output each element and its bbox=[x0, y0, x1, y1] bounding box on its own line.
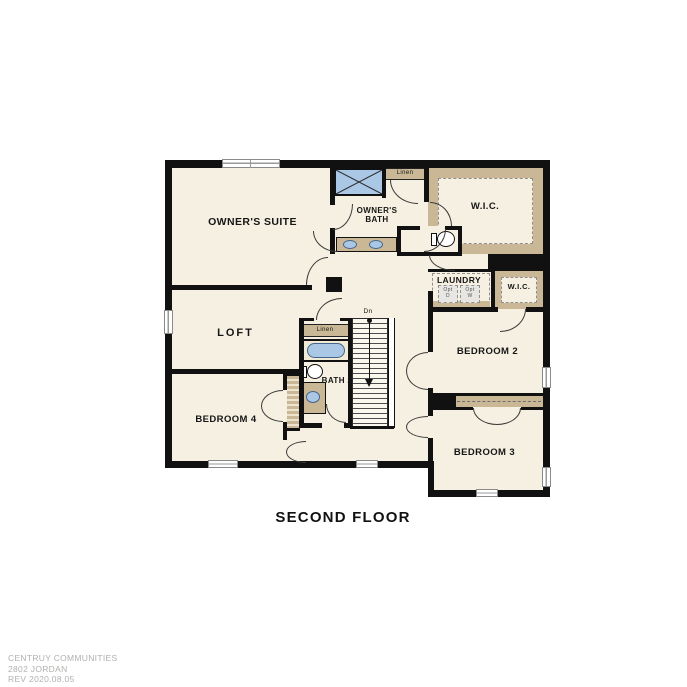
window-mullion bbox=[250, 159, 251, 168]
stair-direction-arrowhead bbox=[365, 379, 373, 387]
bedroom4-closet-shelving bbox=[287, 376, 299, 428]
room-label-bedroom2: BEDROOM 2 bbox=[435, 346, 540, 357]
wall bbox=[299, 423, 322, 428]
wall bbox=[428, 410, 433, 416]
wall bbox=[543, 160, 550, 497]
wall bbox=[172, 285, 312, 290]
room-label-bedroom3: BEDROOM 3 bbox=[432, 447, 537, 458]
sink-icon bbox=[369, 240, 383, 249]
room-label-loft: LOFT bbox=[198, 327, 273, 340]
label-opt-washer: Opt W bbox=[463, 288, 477, 300]
room-label-bedroom4: BEDROOM 4 bbox=[170, 414, 282, 425]
footer-block: CENTRUY COMMUNITIES 2802 JORDAN REV 2020… bbox=[8, 653, 268, 685]
window bbox=[164, 310, 173, 334]
wall bbox=[330, 168, 335, 205]
window bbox=[222, 159, 280, 168]
floor-plan-page: OWNER'S SUITE OWNER'S BATH LOFT BEDROOM … bbox=[0, 0, 687, 687]
window bbox=[208, 460, 238, 468]
wall bbox=[428, 393, 456, 410]
footer-plan-name: 2802 JORDAN bbox=[8, 664, 268, 675]
wall bbox=[283, 422, 287, 440]
wall bbox=[521, 407, 543, 410]
wall bbox=[428, 312, 433, 352]
wall bbox=[428, 269, 491, 272]
room-label-bath2: BATH 2 bbox=[320, 376, 354, 385]
label-stairs-down: Dn bbox=[357, 308, 379, 316]
shower-icon bbox=[334, 168, 384, 196]
window bbox=[542, 467, 551, 487]
closet-rod bbox=[457, 401, 541, 402]
footer-revision: REV 2020.08.05 bbox=[8, 674, 268, 685]
room-label-wic-small: W.I.C. bbox=[495, 283, 543, 292]
page-title: SECOND FLOOR bbox=[203, 509, 483, 527]
label-linen-hall: Linen bbox=[301, 327, 349, 334]
wall bbox=[348, 318, 352, 428]
label-linen-upper: Linen bbox=[385, 170, 425, 177]
room-label-wic-large: W.I.C. bbox=[440, 201, 530, 212]
window bbox=[476, 489, 498, 497]
room-label-owners-bath: OWNER'S BATH bbox=[348, 206, 406, 225]
wall bbox=[299, 318, 314, 321]
stair-railing bbox=[388, 318, 395, 428]
stair-direction-line bbox=[369, 322, 370, 380]
room-label-laundry: LAUNDRY bbox=[426, 275, 492, 285]
sink-icon bbox=[306, 391, 320, 403]
staircase bbox=[352, 318, 388, 428]
wall bbox=[428, 307, 498, 312]
label-opt-dryer: Opt D bbox=[441, 288, 455, 300]
wall bbox=[526, 307, 543, 312]
floor-area-bedroom3 bbox=[432, 463, 542, 492]
wall bbox=[455, 393, 543, 396]
wall bbox=[283, 373, 300, 376]
footer-company: CENTRUY COMMUNITIES bbox=[8, 653, 268, 664]
window bbox=[542, 367, 551, 388]
wall bbox=[428, 461, 434, 494]
wall bbox=[326, 277, 342, 292]
sink-icon bbox=[343, 240, 357, 249]
wall bbox=[455, 407, 473, 410]
wall bbox=[350, 426, 394, 429]
bathtub-icon bbox=[307, 343, 345, 358]
wall bbox=[283, 428, 300, 431]
room-label-owners-suite: OWNER'S SUITE bbox=[205, 216, 300, 228]
wall bbox=[488, 254, 543, 271]
window bbox=[356, 460, 378, 468]
